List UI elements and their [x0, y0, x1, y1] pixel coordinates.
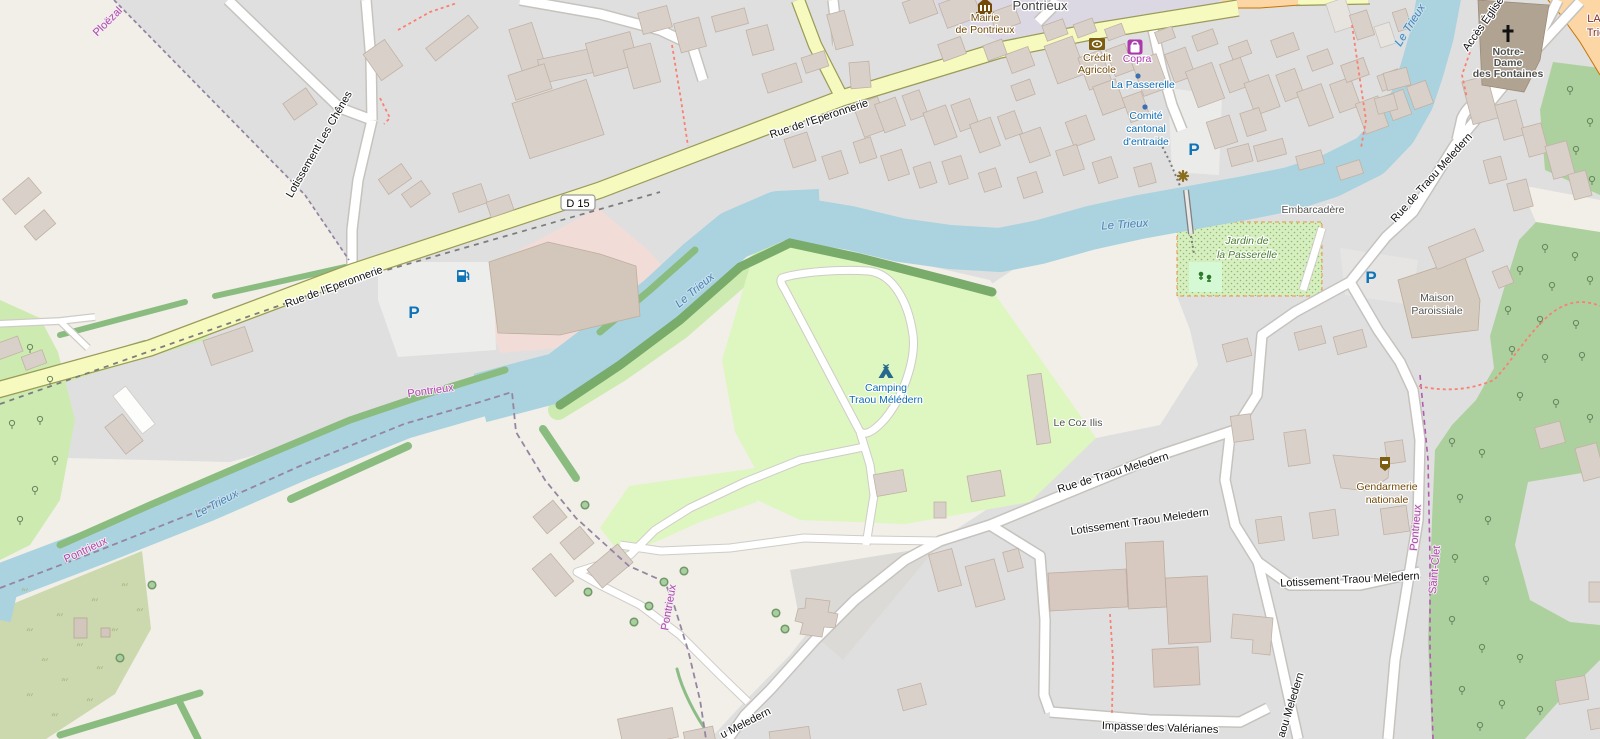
svg-text:La Passerelle: La Passerelle	[1111, 79, 1175, 91]
svg-text:P: P	[408, 303, 419, 322]
svg-text:Embarcadère: Embarcadère	[1281, 204, 1344, 216]
svg-text:Agricole: Agricole	[1078, 64, 1116, 76]
svg-text:Paroissiale: Paroissiale	[1411, 305, 1463, 317]
svg-text:Mairie: Mairie	[971, 12, 1000, 24]
svg-text:P: P	[1188, 140, 1199, 159]
svg-text:LA: LA	[1587, 13, 1600, 25]
svg-text:Traou Mélédern: Traou Mélédern	[849, 394, 923, 406]
svg-text:Le Coz Ilis: Le Coz Ilis	[1053, 417, 1102, 429]
svg-text:Copra: Copra	[1123, 53, 1152, 65]
svg-text:Jardin de: Jardin de	[1224, 235, 1268, 247]
svg-text:la Passerelle: la Passerelle	[1217, 249, 1277, 261]
svg-text:nationale: nationale	[1366, 494, 1409, 506]
svg-text:Crédit: Crédit	[1083, 52, 1111, 64]
svg-text:de Pontrieux: de Pontrieux	[956, 24, 1016, 36]
svg-text:Comité: Comité	[1129, 110, 1162, 122]
svg-text:P: P	[1365, 268, 1376, 287]
svg-text:d'entraide: d'entraide	[1123, 136, 1169, 148]
svg-text:Camping: Camping	[865, 382, 907, 394]
svg-text:Gendarmerie: Gendarmerie	[1356, 481, 1417, 493]
svg-text:D 15: D 15	[566, 198, 589, 210]
svg-text:Pontrieux: Pontrieux	[1013, 0, 1068, 13]
svg-text:Maison: Maison	[1420, 292, 1454, 304]
svg-text:cantonal: cantonal	[1126, 123, 1166, 135]
svg-text:des Fontaines: des Fontaines	[1473, 68, 1544, 80]
svg-text:Trio: Trio	[1587, 27, 1600, 39]
